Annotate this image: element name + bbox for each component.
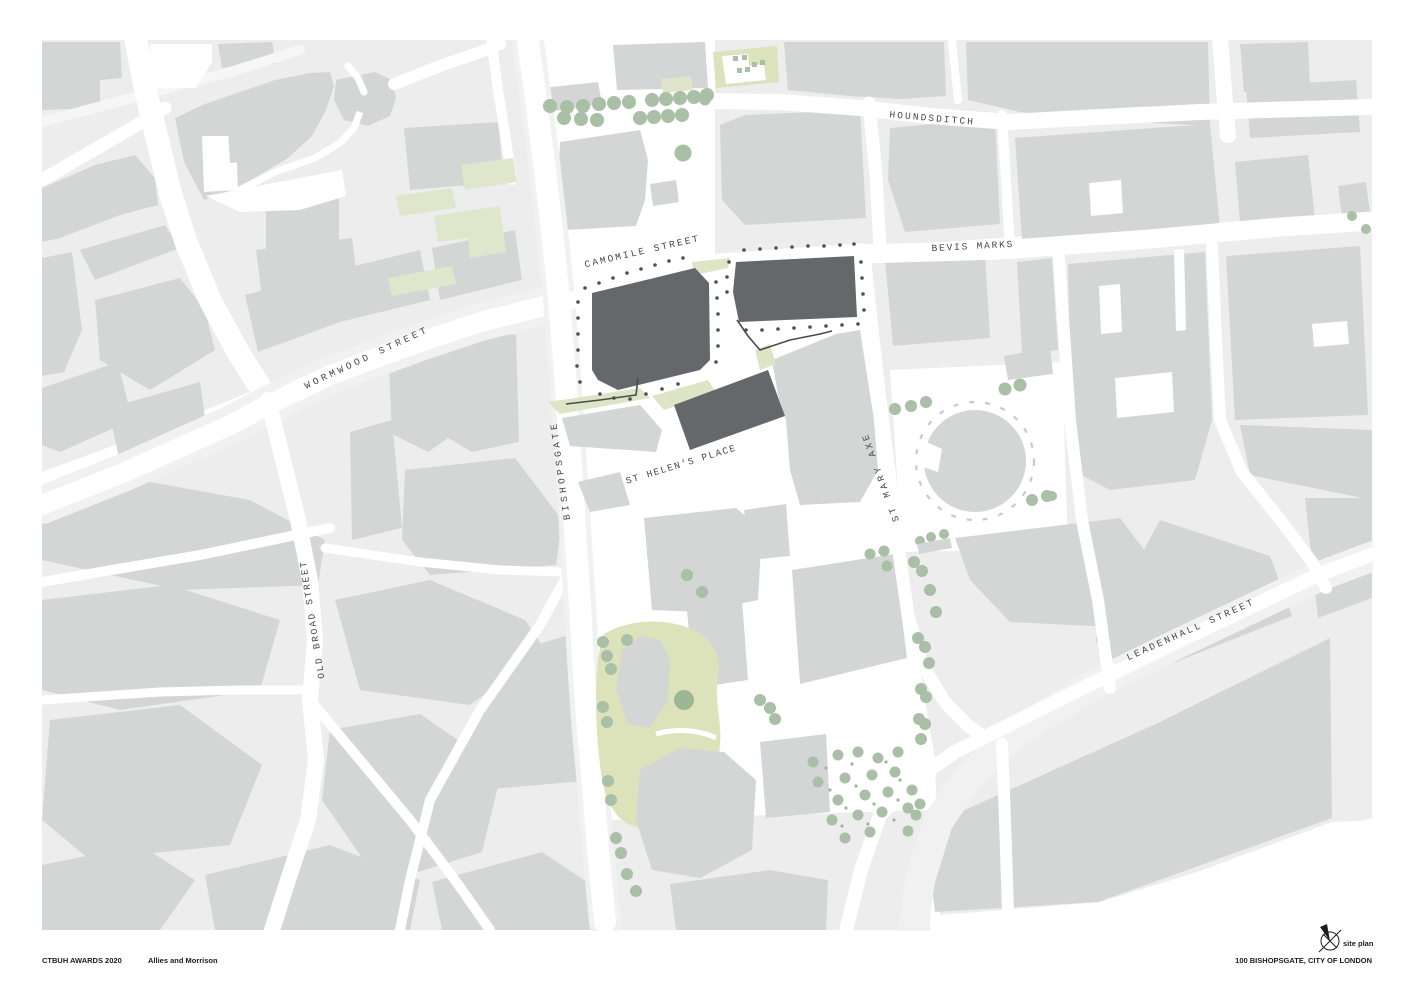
svg-text:CTBUH AWARDS 2020: CTBUH AWARDS 2020: [42, 956, 122, 965]
svg-text:Allies and Morrison: Allies and Morrison: [148, 956, 218, 965]
svg-text:100 BISHOPSGATE, CITY OF LONDO: 100 BISHOPSGATE, CITY OF LONDON: [1235, 956, 1372, 965]
svg-text:site plan: site plan: [1343, 939, 1374, 948]
